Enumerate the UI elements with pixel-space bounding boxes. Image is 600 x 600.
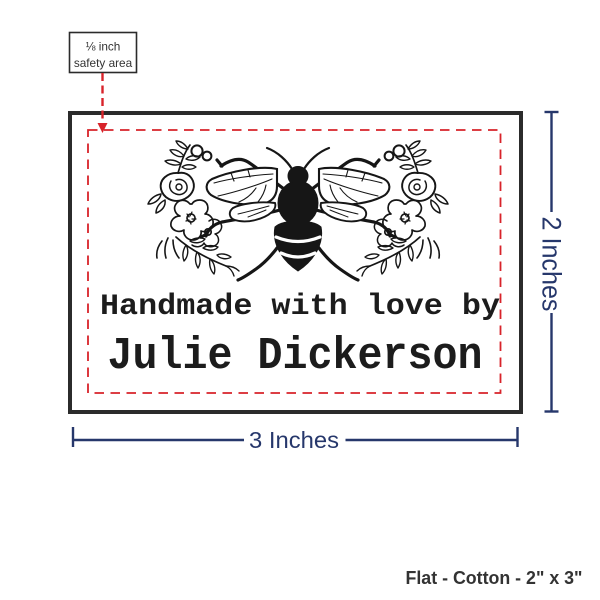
svg-text:2 Inches: 2 Inches [537,217,567,312]
svg-text:Flat - Cotton - 2" x 3": Flat - Cotton - 2" x 3" [406,568,583,588]
svg-text:safety area: safety area [74,56,133,70]
svg-text:3 Inches: 3 Inches [249,427,339,453]
svg-text:⅛ inch: ⅛ inch [86,40,121,54]
svg-text:Handmade with love by: Handmade with love by [100,290,500,324]
svg-text:Julie Dickerson: Julie Dickerson [108,331,483,382]
